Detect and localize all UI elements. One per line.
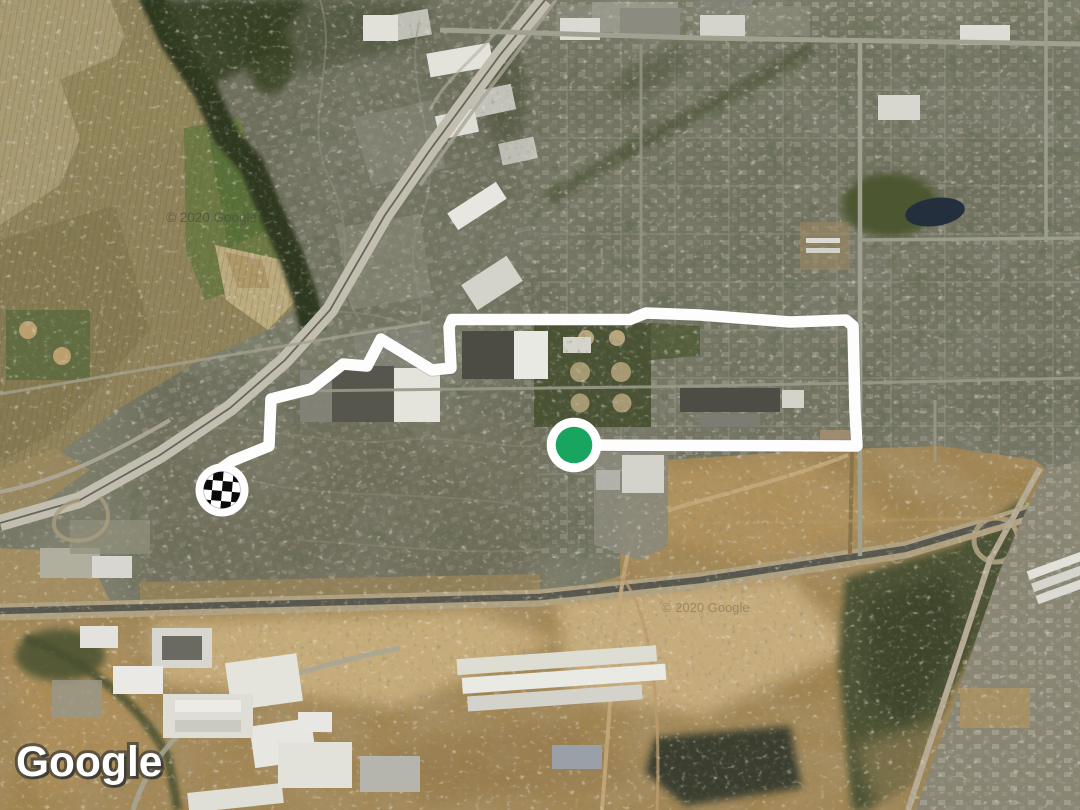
svg-text:Google: Google xyxy=(16,739,162,786)
svg-text:© 2020 Google: © 2020 Google xyxy=(166,210,257,225)
svg-text:© 2020 Google: © 2020 Google xyxy=(662,600,750,615)
